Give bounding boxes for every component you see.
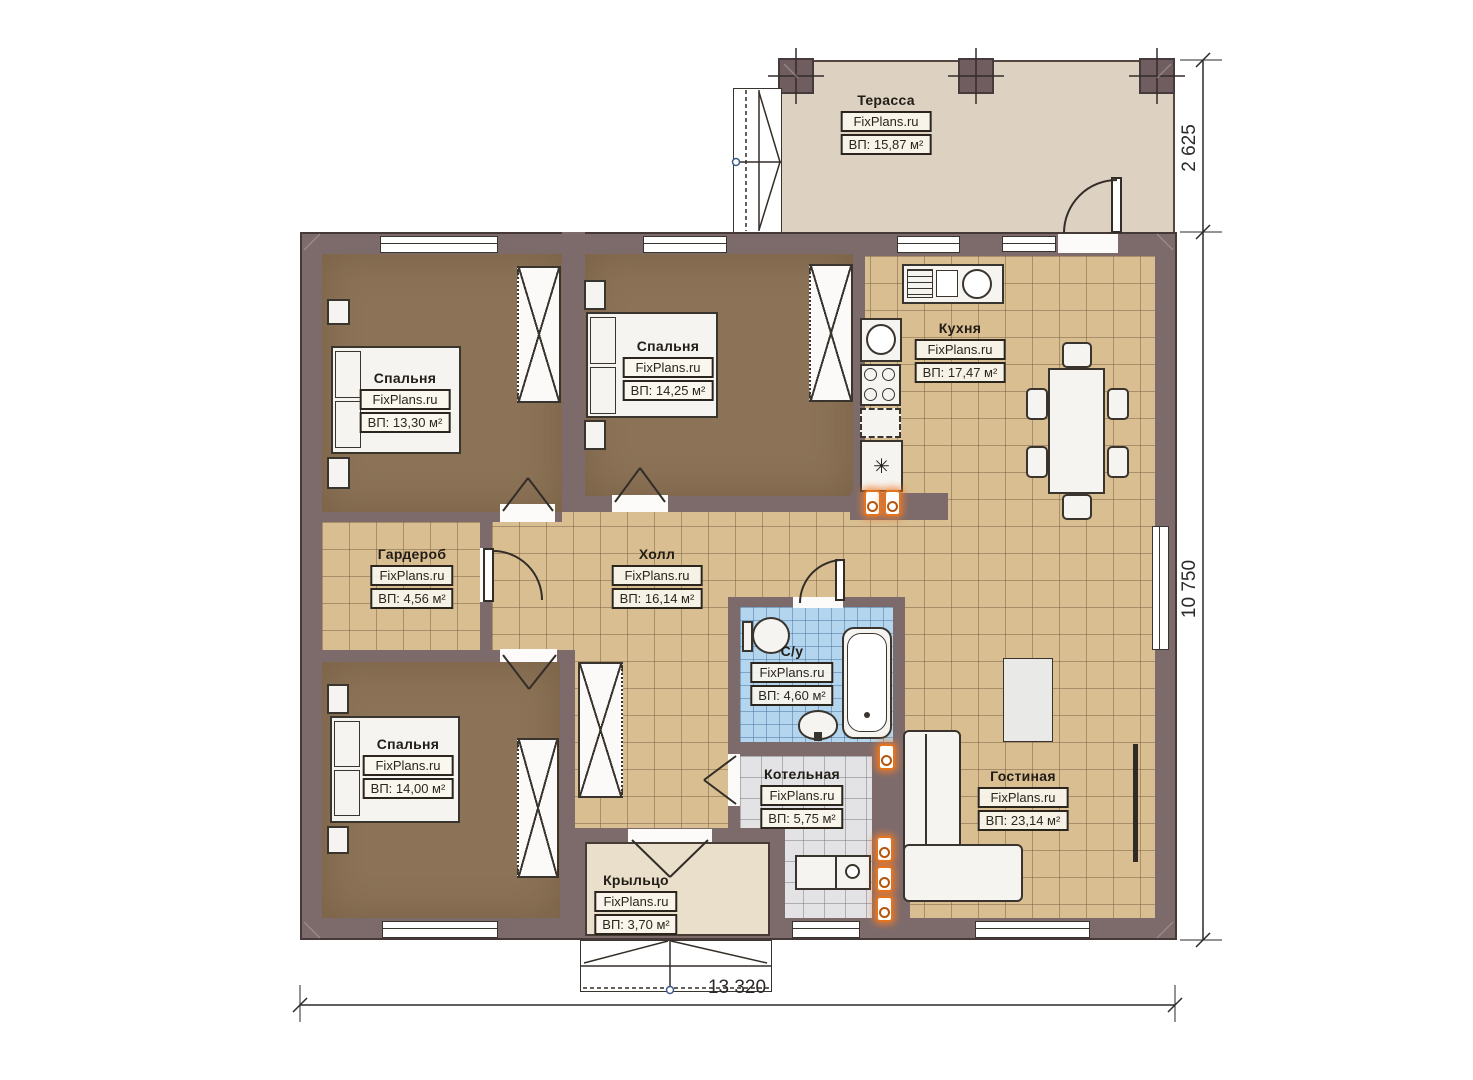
window: [643, 236, 727, 253]
porch-wall: [572, 842, 585, 936]
room-area: ВП: 23,14 м²: [978, 810, 1069, 831]
dishwasher: [860, 408, 901, 438]
door-opening-bedroom1: [500, 504, 555, 522]
window: [1152, 526, 1169, 650]
watermark: FixPlans.ru: [594, 891, 677, 912]
round-sink: [866, 324, 896, 355]
boiler-dial: [845, 864, 860, 879]
wall-wardrobe-bed3: [322, 650, 500, 662]
chair: [1107, 446, 1129, 478]
pillow: [590, 317, 616, 364]
refrigerator: ✳: [860, 440, 903, 492]
room-name: Спальня: [360, 370, 451, 386]
room-label-bedroom2: Спальня FixPlans.ru ВП: 14,25 м²: [623, 338, 714, 401]
room-area: ВП: 4,56 м²: [370, 588, 453, 609]
faucet: [814, 732, 822, 741]
wall-bed2-hall: [585, 496, 612, 512]
watermark: FixPlans.ru: [760, 785, 843, 806]
utility-valve: [864, 490, 881, 516]
nightstand: [327, 299, 350, 325]
room-area: ВП: 14,25 м²: [623, 380, 714, 401]
wardrobe-cabinet: [517, 738, 559, 878]
pillow: [334, 721, 360, 767]
watermark: FixPlans.ru: [841, 111, 932, 132]
chair: [1062, 494, 1092, 520]
terrace-column: [958, 58, 994, 94]
room-name: Крыльцо: [594, 872, 677, 888]
dining-table: [1048, 368, 1105, 494]
dimension-house-depth: 10 750: [1179, 549, 1201, 629]
watermark: FixPlans.ru: [750, 662, 833, 683]
watermark: FixPlans.ru: [612, 565, 703, 586]
utility-valve: [876, 866, 893, 892]
room-label-boiler: Котельная FixPlans.ru ВП: 5,75 м²: [760, 766, 843, 829]
room-label-kitchen: Кухня FixPlans.ru ВП: 17,47 м²: [915, 320, 1006, 383]
nightstand: [584, 280, 606, 310]
window: [897, 236, 960, 253]
room-area: ВП: 5,75 м²: [760, 808, 843, 829]
watermark: FixPlans.ru: [370, 565, 453, 586]
door-opening-bathroom: [793, 597, 843, 608]
boiler-divider: [835, 856, 837, 888]
pillow: [335, 401, 361, 448]
room-area: ВП: 3,70 м²: [594, 914, 677, 935]
room-area: ВП: 14,00 м²: [363, 778, 454, 799]
bathtub-drain: [864, 712, 870, 718]
watermark: FixPlans.ru: [623, 357, 714, 378]
wall-wardrobe-hall: [480, 512, 492, 548]
pillow: [335, 351, 361, 398]
tv: [1133, 744, 1138, 862]
room-area: ВП: 4,60 м²: [750, 685, 833, 706]
nightstand: [327, 457, 350, 489]
utility-valve: [878, 744, 895, 770]
room-name: Спальня: [623, 338, 714, 354]
sofa-seat: [903, 844, 1023, 902]
watermark: FixPlans.ru: [360, 389, 451, 410]
terrace-steps: [733, 88, 782, 233]
chair: [1026, 446, 1048, 478]
window: [975, 921, 1090, 938]
wall-bed1-hall: [555, 512, 562, 522]
room-area: ВП: 13,30 м²: [360, 412, 451, 433]
door-opening-bedroom2: [612, 495, 668, 512]
nightstand: [327, 826, 349, 854]
coffee-table: [1003, 658, 1053, 742]
room-area: ВП: 16,14 м²: [612, 588, 703, 609]
terrace-column: [778, 58, 814, 94]
pillow: [334, 770, 360, 816]
door-opening-bedroom3: [500, 649, 557, 662]
burner: [882, 368, 895, 381]
room-name: Котельная: [760, 766, 843, 782]
room-label-hall: Холл FixPlans.ru ВП: 16,14 м²: [612, 546, 703, 609]
room-name: Спальня: [363, 736, 454, 752]
window: [792, 921, 860, 938]
door-opening-wardrobe: [480, 548, 492, 602]
window-sidelight: [1002, 236, 1056, 252]
chair: [1107, 388, 1129, 420]
burner: [864, 388, 877, 401]
burner: [864, 368, 877, 381]
room-label-bedroom1: Спальня FixPlans.ru ВП: 13,30 м²: [360, 370, 451, 433]
wall-bed1-bed2: [562, 232, 585, 512]
room-label-terrace: Терасса FixPlans.ru ВП: 15,87 м²: [841, 92, 932, 155]
wall-wardrobe-hall: [480, 602, 492, 650]
room-label-bedroom3: Спальня FixPlans.ru ВП: 14,00 м²: [363, 736, 454, 799]
room-name: Гостиная: [978, 768, 1069, 784]
pillow: [590, 367, 616, 414]
terrace-column: [1139, 58, 1175, 94]
window: [382, 921, 498, 938]
wall-bed2-hall: [668, 496, 853, 512]
dimension-terrace-depth: 2 625: [1179, 108, 1201, 188]
nightstand: [327, 684, 349, 714]
room-label-bathroom: С/у FixPlans.ru ВП: 4,60 м²: [750, 643, 833, 706]
sink-basin: [936, 270, 958, 297]
room-name: Терасса: [841, 92, 932, 108]
watermark: FixPlans.ru: [363, 755, 454, 776]
floor-plan: ✳: [0, 0, 1473, 1080]
porch-wall: [770, 842, 785, 936]
nightstand: [584, 420, 606, 450]
wardrobe-cabinet: [517, 266, 561, 403]
room-name: Гардероб: [370, 546, 453, 562]
hall-closet: [578, 662, 623, 798]
room-area: ВП: 17,47 м²: [915, 362, 1006, 383]
burner: [882, 388, 895, 401]
window: [380, 236, 498, 253]
round-basin: [962, 269, 992, 299]
room-area: ВП: 15,87 м²: [841, 134, 932, 155]
dimension-house-width: 13 320: [687, 977, 787, 999]
wall-bed1-hall: [322, 512, 500, 522]
door-opening-boiler: [728, 754, 740, 806]
sink-drainer: [907, 269, 933, 298]
door-opening-terrace: [1058, 234, 1118, 253]
watermark: FixPlans.ru: [915, 339, 1006, 360]
utility-valve: [876, 896, 893, 922]
room-name: Холл: [612, 546, 703, 562]
room-name: Кухня: [915, 320, 1006, 336]
room-label-wardrobe: Гардероб FixPlans.ru ВП: 4,56 м²: [370, 546, 453, 609]
room-name: С/у: [750, 643, 833, 659]
room-label-porch: Крыльцо FixPlans.ru ВП: 3,70 м²: [594, 872, 677, 935]
chair: [1062, 342, 1092, 368]
wardrobe-cabinet: [809, 264, 853, 402]
door-opening-entrance: [628, 829, 712, 842]
utility-valve: [876, 836, 893, 862]
utility-valve: [884, 490, 901, 516]
watermark: FixPlans.ru: [978, 787, 1069, 808]
chair: [1026, 388, 1048, 420]
room-label-living: Гостиная FixPlans.ru ВП: 23,14 м²: [978, 768, 1069, 831]
